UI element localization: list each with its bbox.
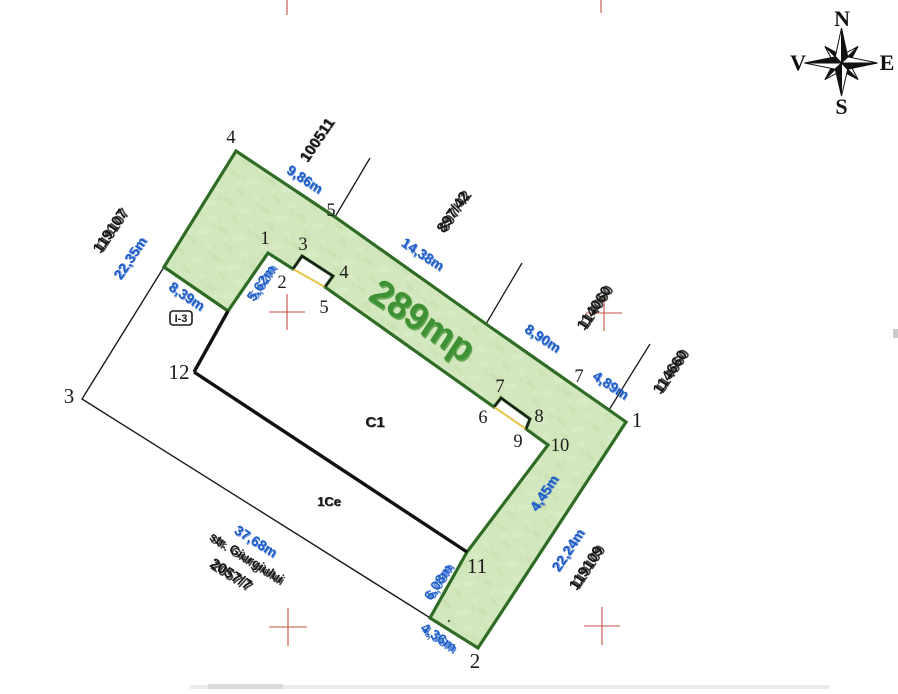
svg-text:11: 11 — [467, 554, 487, 578]
svg-text:E: E — [880, 50, 895, 75]
svg-text:V: V — [790, 50, 806, 75]
svg-text:8: 8 — [534, 407, 543, 427]
svg-text:3: 3 — [298, 235, 307, 255]
svg-text:I-3: I-3 — [175, 313, 188, 325]
svg-text:N: N — [834, 6, 850, 31]
svg-text:10: 10 — [551, 436, 570, 456]
svg-text:7: 7 — [574, 367, 583, 387]
svg-text:1Ce: 1Ce — [317, 494, 341, 509]
svg-text:1: 1 — [632, 408, 643, 432]
svg-text:4: 4 — [339, 263, 348, 283]
svg-text:1: 1 — [260, 229, 269, 249]
svg-text:2: 2 — [277, 273, 286, 293]
svg-text:S: S — [835, 94, 847, 119]
svg-text:C1: C1 — [365, 414, 384, 431]
svg-text:4: 4 — [226, 128, 235, 148]
svg-text:12: 12 — [169, 360, 190, 384]
svg-text:2: 2 — [470, 649, 481, 673]
svg-text:5: 5 — [326, 201, 335, 221]
svg-text:5: 5 — [319, 298, 328, 318]
svg-text:6: 6 — [478, 408, 487, 428]
svg-text:9: 9 — [513, 432, 522, 452]
svg-text:7: 7 — [495, 377, 504, 397]
svg-text:3: 3 — [64, 384, 75, 408]
